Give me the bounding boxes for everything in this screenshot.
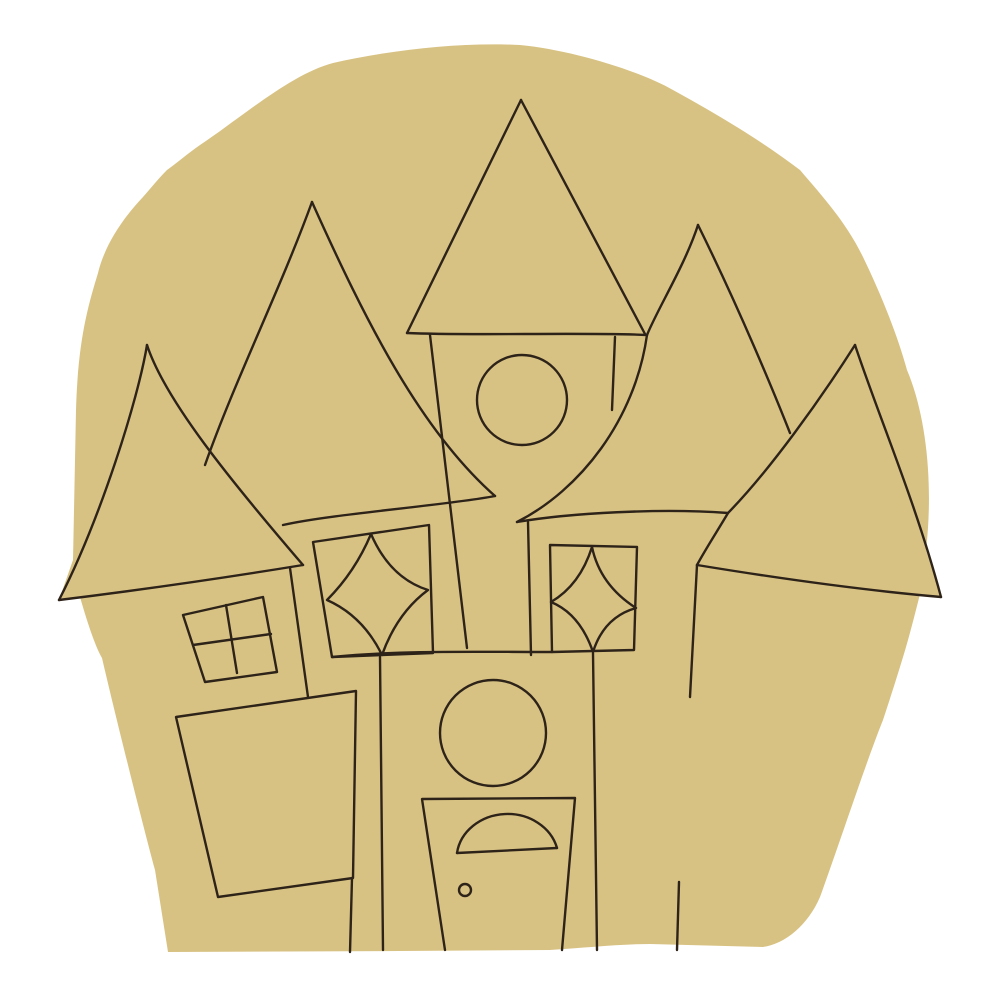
product-image: [0, 0, 1000, 1000]
haunted-house-cutout-illustration: [0, 0, 1000, 1000]
center-tower-eave: [407, 333, 647, 335]
cutout-silhouette: [59, 44, 941, 952]
